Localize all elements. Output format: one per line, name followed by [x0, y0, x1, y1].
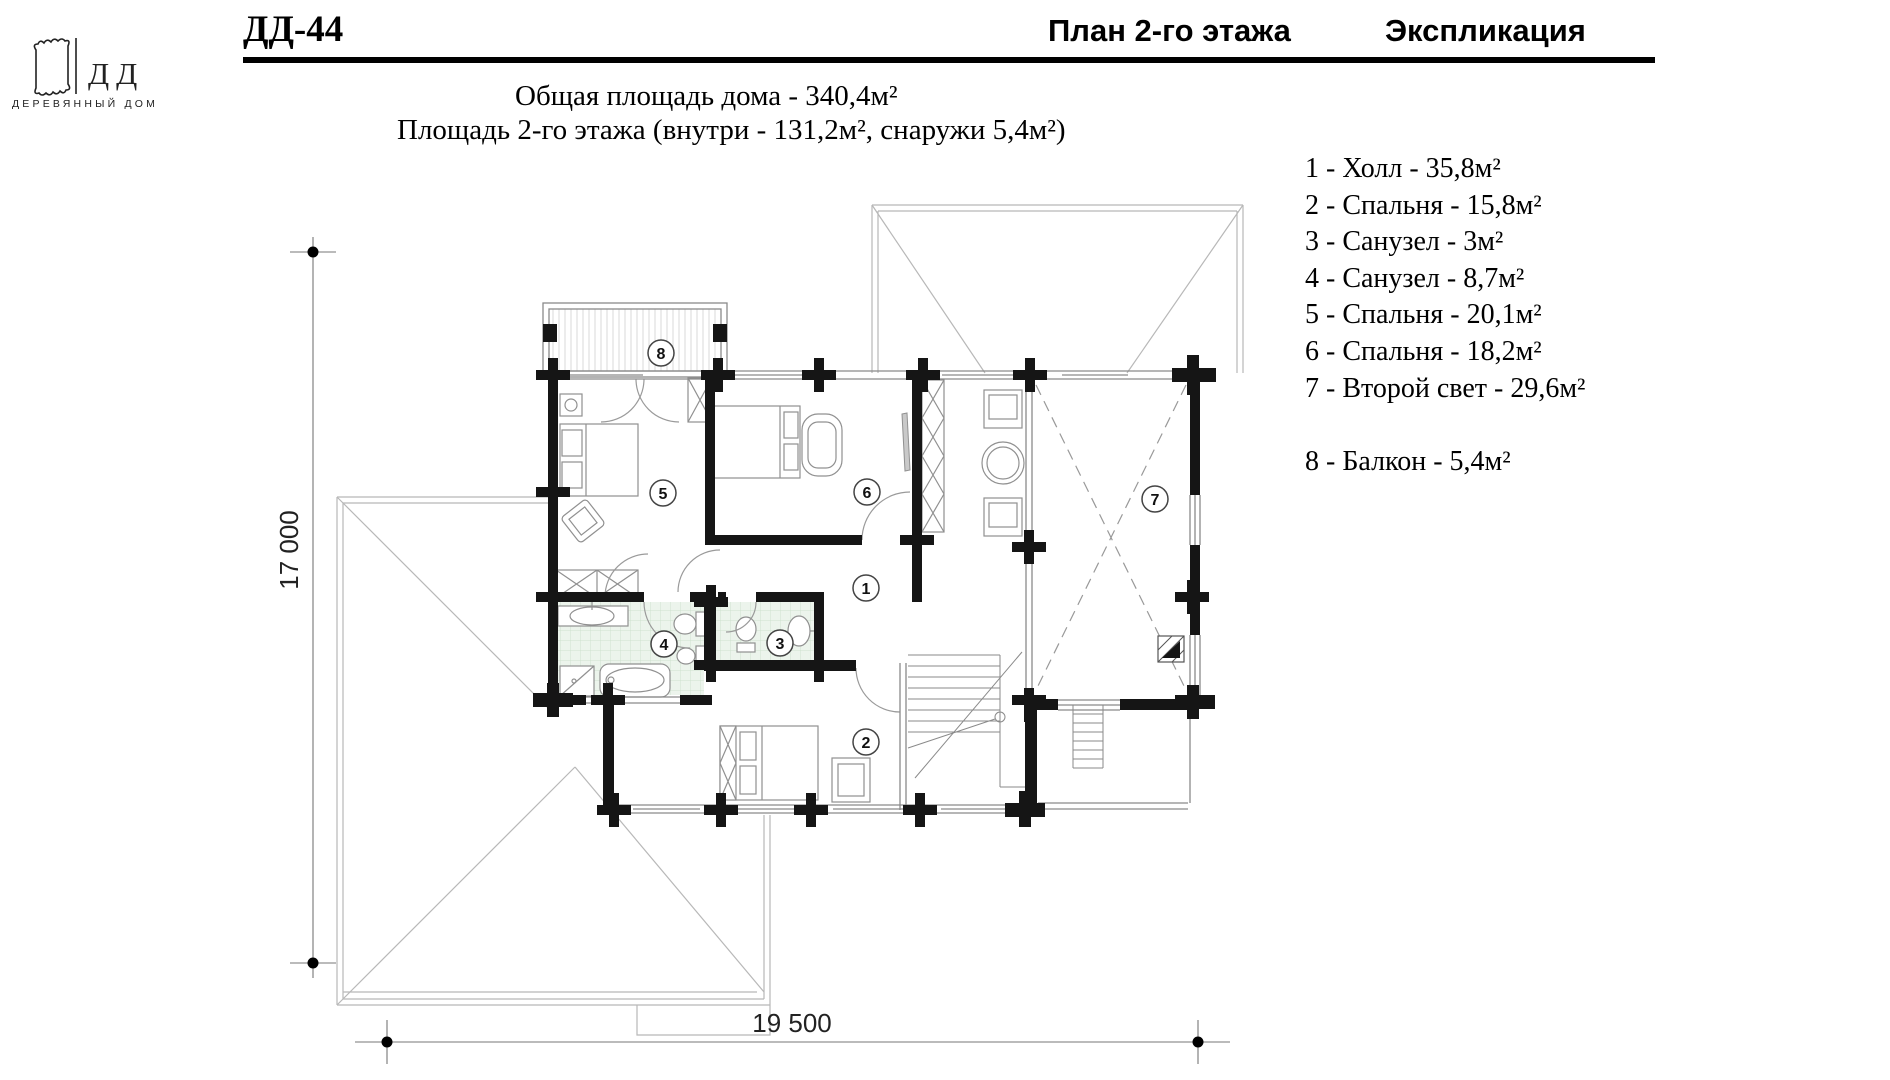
- chimney-icon: [1158, 636, 1184, 662]
- staircase: [908, 652, 1103, 787]
- svg-text:17 000: 17 000: [274, 510, 304, 590]
- room-marker-5: 5: [650, 480, 676, 506]
- closet-hatch: [922, 380, 944, 532]
- armchair-room5: [561, 499, 606, 544]
- room-marker-6: 6: [854, 479, 880, 505]
- sink-counter-bath4: [558, 602, 628, 626]
- svg-text:6: 6: [863, 485, 872, 502]
- svg-text:8: 8: [657, 346, 666, 363]
- svg-text:3: 3: [776, 636, 785, 653]
- toilet-bath4: [674, 612, 706, 636]
- svg-text:1: 1: [862, 581, 871, 598]
- roof-outline-upper-right: [872, 205, 1243, 373]
- bed-room2: [720, 726, 818, 800]
- dimension-width: 19 500: [355, 1008, 1230, 1064]
- bed-room6: [714, 406, 842, 478]
- shower-bath4: [560, 666, 594, 696]
- svg-text:2: 2: [862, 735, 871, 752]
- svg-text:5: 5: [659, 486, 668, 503]
- bed-room5: [560, 394, 638, 496]
- chair-room2: [832, 758, 870, 802]
- room-marker-1: 1: [853, 575, 879, 601]
- svg-text:19 500: 19 500: [752, 1008, 832, 1038]
- room-marker-3: 3: [767, 630, 793, 656]
- dimension-height: 17 000: [274, 237, 336, 978]
- toilet-bath3: [736, 617, 756, 652]
- mirror-room6: [902, 413, 910, 471]
- room-marker-2: 2: [853, 729, 879, 755]
- room-marker-4: 4: [651, 631, 677, 657]
- svg-text:4: 4: [660, 637, 669, 654]
- room-marker-7: 7: [1142, 486, 1168, 512]
- hall-chairs-and-table: [982, 390, 1024, 536]
- room-marker-8: 8: [648, 340, 674, 366]
- balcony: [543, 303, 727, 377]
- floor-plan-drawing: 1 2 3 4 5 6 7 8 17 000 19 500: [0, 0, 1890, 1080]
- svg-text:7: 7: [1151, 492, 1160, 509]
